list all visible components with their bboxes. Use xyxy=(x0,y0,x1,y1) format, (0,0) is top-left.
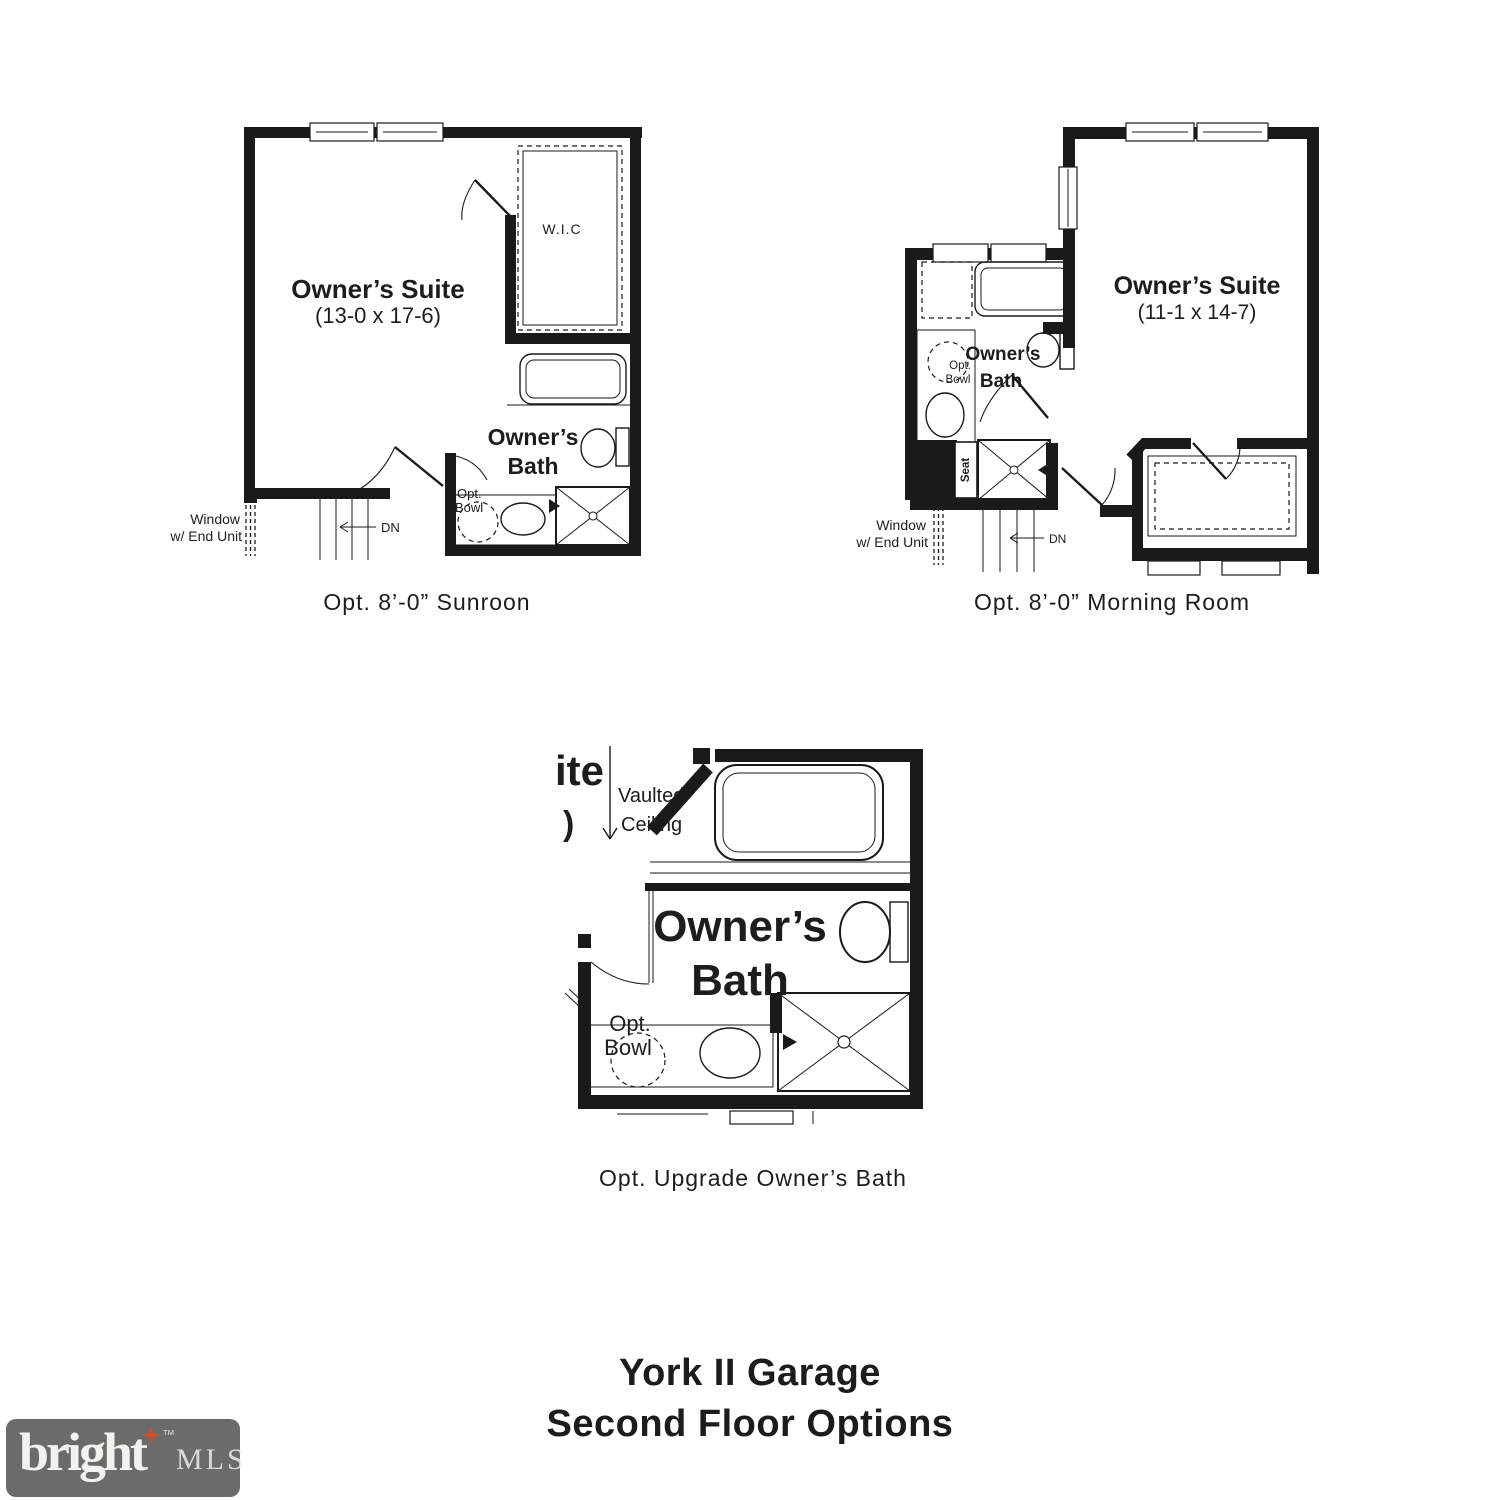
wall xyxy=(1307,127,1319,574)
opt-bowl-label: Bowl xyxy=(455,500,483,515)
cutoff-suite-text: ite ) xyxy=(555,747,604,843)
closet-shelf-line xyxy=(523,151,617,325)
wall xyxy=(693,748,710,764)
vaulted-ceiling-note: Vaulted Ceiling xyxy=(603,746,684,839)
bath-label: Owner’s xyxy=(488,424,579,450)
wall xyxy=(645,883,923,891)
window-end-unit-label: w/ End Unit xyxy=(169,528,242,544)
bath-label: Bath xyxy=(691,956,789,1005)
owners-suite: Owner’s Suite (11-1 x 14-7) xyxy=(1114,272,1281,324)
stair-direction-arrow xyxy=(340,522,376,532)
shower-door-arrow-icon xyxy=(1038,463,1049,477)
caption-upgrade-bath: Opt. Upgrade Owner’s Bath xyxy=(553,1165,953,1192)
window-end-unit-label: w/ End Unit xyxy=(855,534,928,550)
wall xyxy=(578,1095,923,1109)
wall xyxy=(505,215,516,344)
wic-label: W.I.C xyxy=(542,221,581,237)
wall xyxy=(1143,438,1191,449)
owners-bath: Owner’s Bath Opt. Bowl xyxy=(590,902,910,1091)
room-dims: (13-0 x 17-6) xyxy=(315,303,441,328)
end-unit-window: Window w/ End Unit xyxy=(855,507,943,565)
owners-bath: Owner’s Bath Opt. Bowl xyxy=(447,354,630,545)
caption-sunroom: Opt. 8’-0” Sunroon xyxy=(227,589,627,616)
bathtub-inner xyxy=(981,268,1067,310)
window xyxy=(1148,561,1200,575)
sink xyxy=(700,1028,760,1078)
opt-bowl-label: Opt. xyxy=(609,1011,651,1036)
svg-text:ite: ite xyxy=(555,747,604,794)
window xyxy=(933,244,988,262)
wall xyxy=(244,493,257,503)
caption-morning-room: Opt. 8’-0” Morning Room xyxy=(912,589,1312,616)
bathtub-inner xyxy=(526,360,620,398)
bathtub xyxy=(520,354,626,404)
wall xyxy=(1100,505,1132,517)
top-windows xyxy=(933,123,1268,262)
wall xyxy=(905,440,957,500)
shower xyxy=(549,487,630,545)
window xyxy=(991,244,1046,262)
bath-label: Bath xyxy=(507,453,558,479)
stairs: DN xyxy=(320,499,400,560)
wall xyxy=(930,495,944,505)
door-swing-arc xyxy=(591,962,649,984)
bathtub xyxy=(975,262,1073,316)
wall xyxy=(244,127,255,499)
wall xyxy=(445,545,641,556)
shower-door-arrow-icon xyxy=(783,1034,797,1050)
wall xyxy=(578,934,591,948)
stair-direction-arrow xyxy=(1010,533,1044,543)
door-leaf xyxy=(1062,468,1102,505)
closet-dashed-outline xyxy=(518,146,622,330)
floor-plan-morning-room: Owner’s Suite (11-1 x 14-7) Owner’s Bath… xyxy=(830,110,1325,580)
opt-bowl-label: Opt. xyxy=(457,486,482,501)
vanity: Opt. Bowl xyxy=(590,1011,773,1087)
end-unit-window: Window w/ End Unit xyxy=(169,505,255,556)
floor-plan-upgrade-bath: ite ) Vaulted Ceiling xyxy=(545,738,955,1140)
vanity: Opt. Bowl xyxy=(447,486,556,545)
door-swing-arc xyxy=(1102,468,1115,505)
door-swing-arc xyxy=(360,447,395,489)
door-leaf xyxy=(395,447,443,486)
room-label: Owner’s Suite xyxy=(291,274,464,304)
shower-door-arrow-icon xyxy=(549,499,560,513)
sink xyxy=(926,393,964,437)
stairs: DN xyxy=(983,510,1066,572)
walk-in-closet: W.I.C xyxy=(462,146,622,330)
wall xyxy=(1132,548,1308,561)
window-end-unit-label: Window xyxy=(876,517,927,533)
walls xyxy=(244,127,642,556)
wall xyxy=(715,749,923,762)
bath-label: Owner’s xyxy=(653,902,827,951)
hall-door xyxy=(1062,468,1115,505)
sink xyxy=(501,503,545,535)
door-leaf xyxy=(475,180,512,218)
room-dims: (11-1 x 14-7) xyxy=(1138,301,1257,324)
wall xyxy=(578,962,591,1109)
door-swing-arc xyxy=(462,180,475,220)
door-leaf xyxy=(1193,443,1226,479)
owners-suite: Owner’s Suite (13-0 x 17-6) xyxy=(291,274,464,489)
wall xyxy=(910,749,923,1109)
wall xyxy=(244,488,390,499)
door-leaf xyxy=(1012,375,1048,418)
bath-label: Owner’s xyxy=(966,344,1041,365)
logo-star-icon xyxy=(142,1426,160,1444)
toilet xyxy=(840,902,890,962)
shower xyxy=(778,993,910,1091)
floor-plan-sunroom: W.I.C Owner’s Suite (13-0 x 17-6) Owner’… xyxy=(160,108,660,578)
shower xyxy=(978,440,1050,500)
cutoff-lower-walls xyxy=(617,1111,813,1124)
opt-bowl-label: Opt. xyxy=(949,360,971,372)
logo-mls-text: MLS xyxy=(176,1443,247,1477)
toilet-tank xyxy=(616,428,629,466)
page-title-line1: York II Garage xyxy=(0,1352,1500,1395)
dn-label: DN xyxy=(381,520,400,535)
wall xyxy=(1237,438,1308,449)
bath-label: Bath xyxy=(980,371,1022,392)
shower-seat: Seat xyxy=(955,442,977,498)
toilet-tank xyxy=(890,902,908,962)
logo-brand-text: bright xyxy=(19,1413,145,1491)
closet xyxy=(1130,438,1308,575)
top-windows xyxy=(310,123,443,141)
dn-label: DN xyxy=(1049,532,1066,546)
closet-shelf-line xyxy=(1148,456,1296,536)
window xyxy=(730,1111,793,1124)
wall xyxy=(905,248,1075,260)
toilet xyxy=(581,429,615,467)
wall xyxy=(1063,127,1075,167)
opt-bowl-label: Bowl xyxy=(604,1035,652,1060)
wall xyxy=(1132,450,1143,550)
bright-mls-logo: bright ™ MLS xyxy=(6,1419,240,1497)
wall xyxy=(505,333,641,344)
svg-text:): ) xyxy=(563,805,574,843)
linen-dashed xyxy=(922,262,972,318)
wall xyxy=(905,248,917,443)
room-label: Owner’s Suite xyxy=(1114,272,1281,300)
window xyxy=(1222,561,1280,575)
floor-plan-sheet: W.I.C Owner’s Suite (13-0 x 17-6) Owner’… xyxy=(0,0,1500,1500)
seat-label: Seat xyxy=(960,458,972,482)
window-end-unit-label: Window xyxy=(190,511,241,527)
logo-trademark: ™ xyxy=(162,1427,175,1442)
opt-bowl-label: Bowl xyxy=(946,374,971,386)
